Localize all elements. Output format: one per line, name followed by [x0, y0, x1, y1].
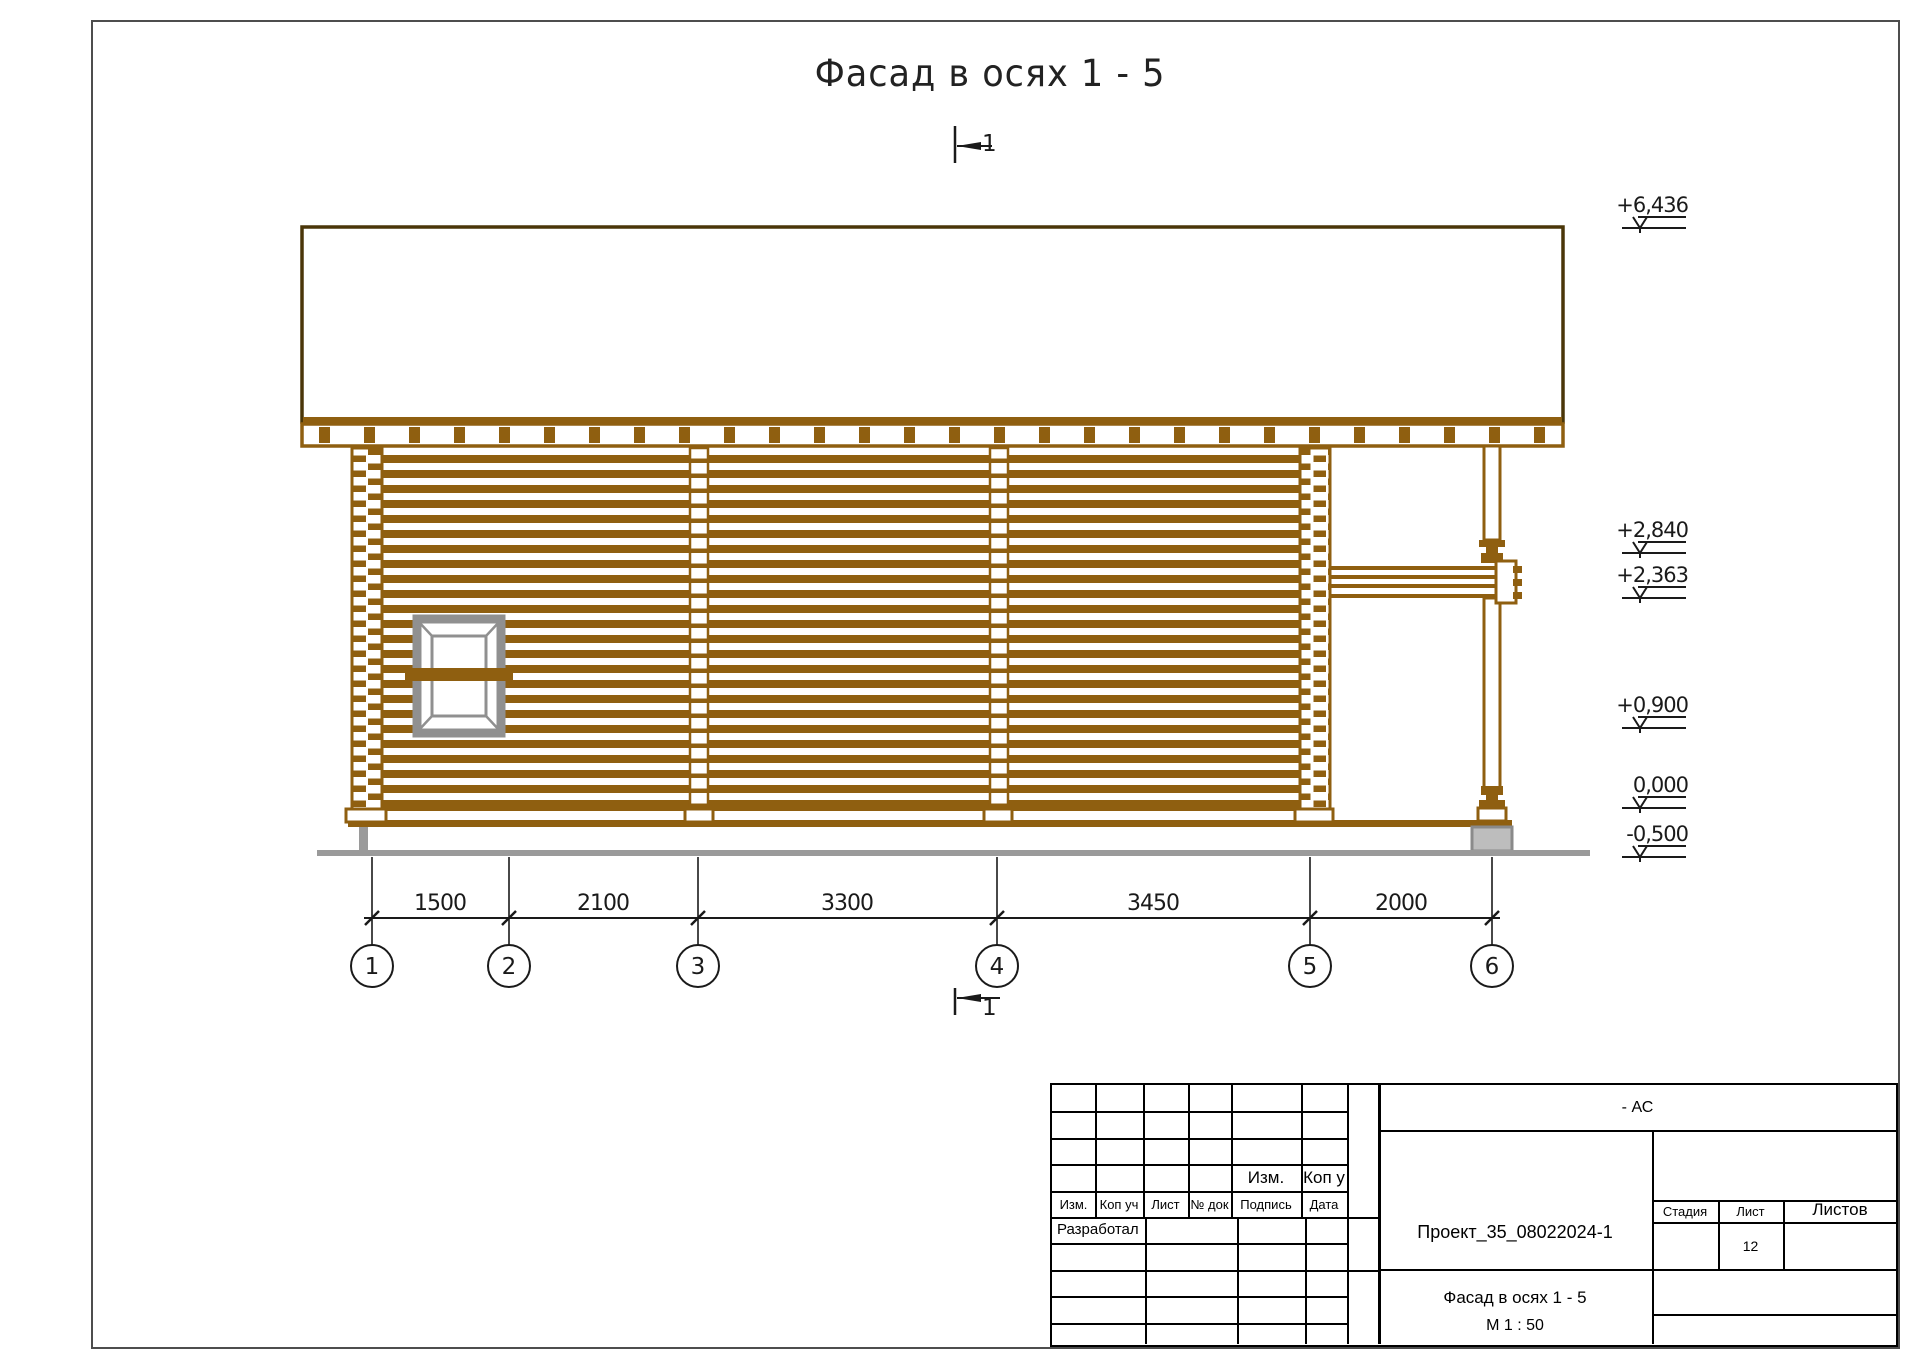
dimension-value: 1500: [414, 891, 466, 916]
axis-number: 6: [1485, 954, 1500, 980]
axis-number: 3: [691, 954, 706, 980]
stage-label: Стадия: [1652, 1200, 1718, 1222]
set-code: - АС: [1378, 1085, 1897, 1130]
dimension-value: 3300: [821, 891, 873, 916]
window: [405, 619, 513, 733]
elevation-mark: +6,436: [1616, 193, 1688, 233]
developed-label: Разработал: [1057, 1221, 1139, 1238]
elevation-mark: +0,900: [1616, 693, 1688, 733]
sheet-label: Лист: [1718, 1200, 1783, 1222]
elevation-value: +2,363: [1616, 563, 1688, 587]
rev-col-list: Лист: [1143, 1191, 1188, 1217]
axis-number: 1: [365, 954, 380, 980]
log-joint-axis3: [690, 448, 708, 811]
section-label-top: 1: [982, 131, 997, 157]
log-joint-axis4: [990, 448, 1008, 811]
elevation-value: +2,840: [1616, 518, 1688, 542]
rafter-tails: [305, 427, 1560, 443]
section-marker-bottom: 1: [955, 988, 1000, 1021]
axis-number: 4: [990, 954, 1005, 980]
section-label-bottom: 1: [982, 995, 997, 1021]
porch-post: [1478, 446, 1506, 821]
elevation-mark: +2,363: [1616, 563, 1688, 603]
axis-bubbles: 1 2 3 4 5 6: [351, 945, 1513, 987]
title-block: Изм. Коп у Изм. Коп уч Лист № док Подпис…: [1050, 1083, 1898, 1347]
window-transom-log: [405, 668, 513, 681]
porch-beam: [1330, 561, 1522, 603]
elevation-value: 0,000: [1633, 773, 1688, 797]
bottom-rail: [346, 809, 1512, 827]
section-marker-top: 1: [955, 126, 997, 163]
axis-number: 2: [502, 954, 517, 980]
ground-line: [317, 850, 1590, 856]
elevation-marks: +6,436 +2,840 +2,363 +0,900 0,000: [1616, 193, 1688, 862]
elevation-mark: 0,000: [1622, 773, 1688, 813]
sheet-number: 12: [1718, 1222, 1783, 1269]
preheader-izm: Изм.: [1231, 1164, 1301, 1191]
elevation-mark: -0,500: [1622, 822, 1688, 862]
foundation: [317, 827, 1590, 856]
dimension-value: 2100: [577, 891, 629, 916]
foundation-pier-right: [1472, 827, 1512, 851]
project-code: Проект_35_08022024-1: [1378, 1210, 1652, 1255]
preheader-kop: Коп у: [1301, 1164, 1347, 1191]
elevation-value: +0,900: [1616, 693, 1688, 717]
corner-notches-right: [1300, 448, 1330, 811]
axis-number: 5: [1303, 954, 1318, 980]
drawing-scale: М 1 : 50: [1378, 1311, 1652, 1341]
sheets-label: Листов: [1783, 1198, 1897, 1222]
dimension-string: 1500 2100 3300 3450 2000: [364, 857, 1500, 946]
rev-col-kopuch: Коп уч: [1095, 1191, 1143, 1217]
rev-col-ndok: № док: [1188, 1191, 1231, 1217]
roof: [302, 227, 1563, 423]
drawing-sheet: Фасад в осях 1 - 5: [0, 0, 1920, 1358]
elevation-value: +6,436: [1616, 193, 1688, 217]
rev-col-izm: Изм.: [1052, 1191, 1095, 1217]
corner-notches-left: [352, 448, 382, 811]
foundation-pier-left: [359, 827, 368, 851]
rev-col-podpis: Подпись: [1231, 1191, 1301, 1217]
elevation-mark: +2,840: [1616, 518, 1688, 558]
elevation-value: -0,500: [1626, 822, 1688, 846]
drawing-name: Фасад в осях 1 - 5: [1378, 1280, 1652, 1315]
eave-fascia: [302, 424, 1563, 446]
rev-col-data: Дата: [1301, 1191, 1347, 1217]
dimension-value: 2000: [1375, 891, 1427, 916]
dimension-value: 3450: [1127, 891, 1179, 916]
